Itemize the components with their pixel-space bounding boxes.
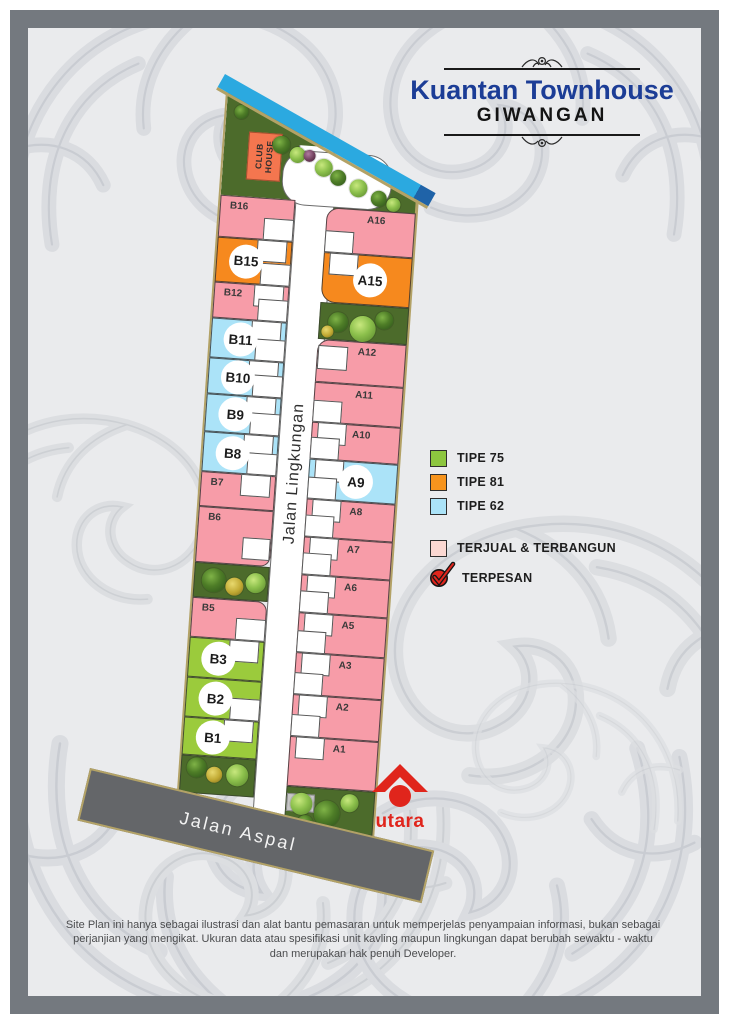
building-footprint (295, 736, 325, 760)
legend-item-reserved: TERPESAN (430, 569, 532, 587)
lot-label-A16: A16 (367, 215, 386, 227)
building-footprint (309, 437, 339, 461)
header: Kuantan Townhouse GIWANGAN (406, 68, 678, 136)
legend-item-tipe75: TIPE 75 (430, 449, 504, 467)
header-divider-bottom (444, 134, 640, 136)
building-footprint (263, 218, 294, 242)
legend-label-tipe81: TIPE 81 (457, 475, 504, 489)
divider-ornament-icon (520, 135, 564, 150)
project-title: Kuantan Townhouse (406, 76, 678, 104)
lot-label-A1: A1 (332, 744, 346, 756)
north-arrow-icon (367, 756, 433, 808)
project-location: GIWANGAN (406, 105, 678, 127)
building-footprint (304, 514, 334, 538)
building-footprint (324, 230, 354, 254)
legend-label-reserved: TERPESAN (462, 571, 532, 585)
building-footprint (235, 618, 266, 642)
lot-label-A7: A7 (346, 544, 360, 556)
lot-label-A6: A6 (344, 582, 358, 594)
legend-swatch-tipe81 (430, 474, 447, 491)
north-label: utara (365, 811, 435, 833)
building-footprint (229, 698, 260, 722)
legend-item-sold: TERJUAL & TERBANGUN (430, 539, 616, 557)
building-footprint (312, 400, 342, 424)
legend-item-tipe62: TIPE 62 (430, 497, 504, 515)
lot-label-A3: A3 (338, 660, 352, 672)
legend-label-tipe75: TIPE 75 (457, 451, 504, 465)
building-footprint (317, 345, 349, 371)
building-footprint (301, 552, 331, 576)
lot-label-B5: B5 (201, 602, 215, 614)
legend-swatch-sold (430, 540, 447, 557)
lot-label-B16: B16 (230, 200, 249, 212)
lot-label-A2: A2 (335, 702, 349, 714)
lot-label-A5: A5 (341, 620, 355, 632)
disclaimer: Site Plan ini hanya sebagai ilustrasi da… (63, 918, 663, 961)
lot-label-A11: A11 (355, 390, 374, 402)
lot-label-A10: A10 (352, 430, 371, 442)
building-footprint (240, 474, 271, 498)
building-footprint (241, 537, 270, 561)
building-footprint (307, 477, 337, 501)
poster-inner: Kuantan Townhouse GIWANGAN (28, 28, 701, 996)
building-footprint (299, 590, 329, 614)
lot-label-B7: B7 (210, 477, 224, 489)
lot-label-A12: A12 (357, 347, 376, 359)
legend-item-tipe81: TIPE 81 (430, 473, 504, 491)
building-footprint (246, 452, 277, 476)
divider-ornament-icon (520, 54, 564, 69)
legend-label-sold: TERJUAL & TERBANGUN (457, 541, 616, 555)
building-footprint (290, 714, 320, 738)
lot-label-A8: A8 (349, 507, 363, 519)
building-footprint (252, 374, 283, 398)
north-indicator: utara (365, 756, 435, 833)
check-circle-icon (430, 569, 457, 587)
building-footprint (257, 299, 288, 323)
building-footprint (259, 263, 290, 287)
legend-swatch-tipe62 (430, 498, 447, 515)
building-footprint (249, 412, 280, 436)
building-footprint (254, 339, 285, 363)
building-footprint (293, 672, 323, 696)
legend-swatch-tipe75 (430, 450, 447, 467)
lot-label-B6: B6 (208, 512, 222, 524)
poster-page: Kuantan Townhouse GIWANGAN (0, 0, 729, 1024)
asphalt-road-label: Jalan Aspal (178, 807, 299, 855)
lot-label-B12: B12 (223, 287, 242, 299)
building-footprint (296, 630, 326, 654)
legend-label-tipe62: TIPE 62 (457, 499, 504, 513)
header-divider-top (444, 68, 640, 70)
